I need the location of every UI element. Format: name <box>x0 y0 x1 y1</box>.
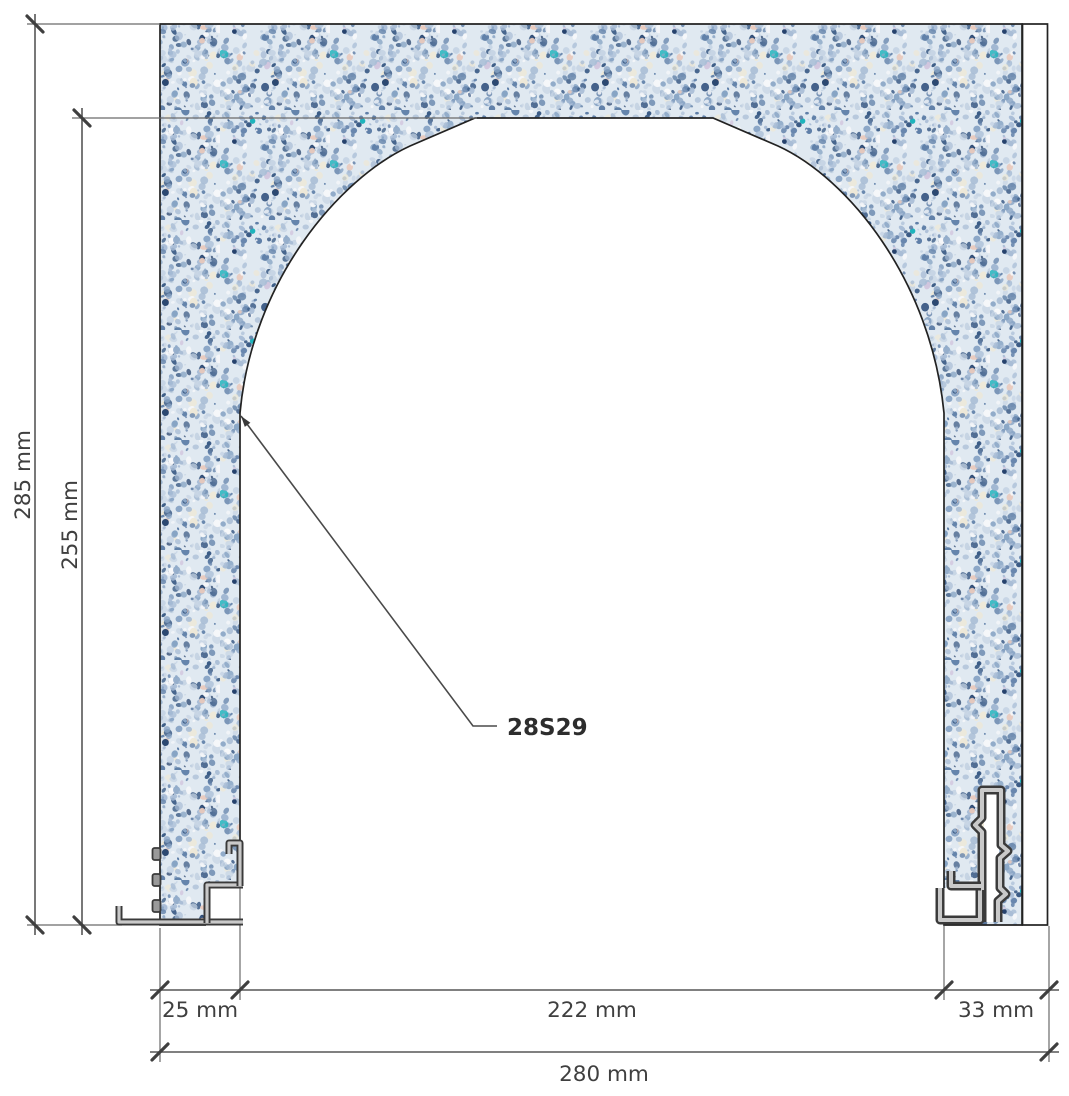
part-label: 28S29 <box>507 715 588 741</box>
opening-width-label: 222 mm <box>547 998 637 1023</box>
wood-strip <box>1023 24 1048 925</box>
left-jamb-width-label: 25 mm <box>162 998 238 1023</box>
part-label-callout: 28S29 <box>241 416 588 741</box>
leader-arrowhead <box>241 416 250 427</box>
dimension-bottom-widths: 25 mm 222 mm 33 mm <box>150 888 1059 1062</box>
technical-drawing-page: 285 mm 255 mm 25 mm 222 mm 33 mm 280 mm <box>0 0 1069 1096</box>
leader-line <box>241 416 497 726</box>
arch-section-drawing: 285 mm 255 mm 25 mm 222 mm 33 mm 280 mm <box>0 0 1069 1096</box>
profile-barb <box>153 900 161 912</box>
masonry-section <box>160 24 1022 925</box>
overall-height-label: 285 mm <box>11 430 36 520</box>
dimension-overall-width: 280 mm <box>150 1044 1059 1087</box>
dimension-overall-height: 285 mm <box>11 14 160 935</box>
overall-width-label: 280 mm <box>559 1062 649 1087</box>
opening-height-label: 255 mm <box>58 480 83 570</box>
profile-barb <box>153 874 161 886</box>
profile-barb <box>153 848 161 860</box>
right-jamb-width-label: 33 mm <box>958 998 1034 1023</box>
